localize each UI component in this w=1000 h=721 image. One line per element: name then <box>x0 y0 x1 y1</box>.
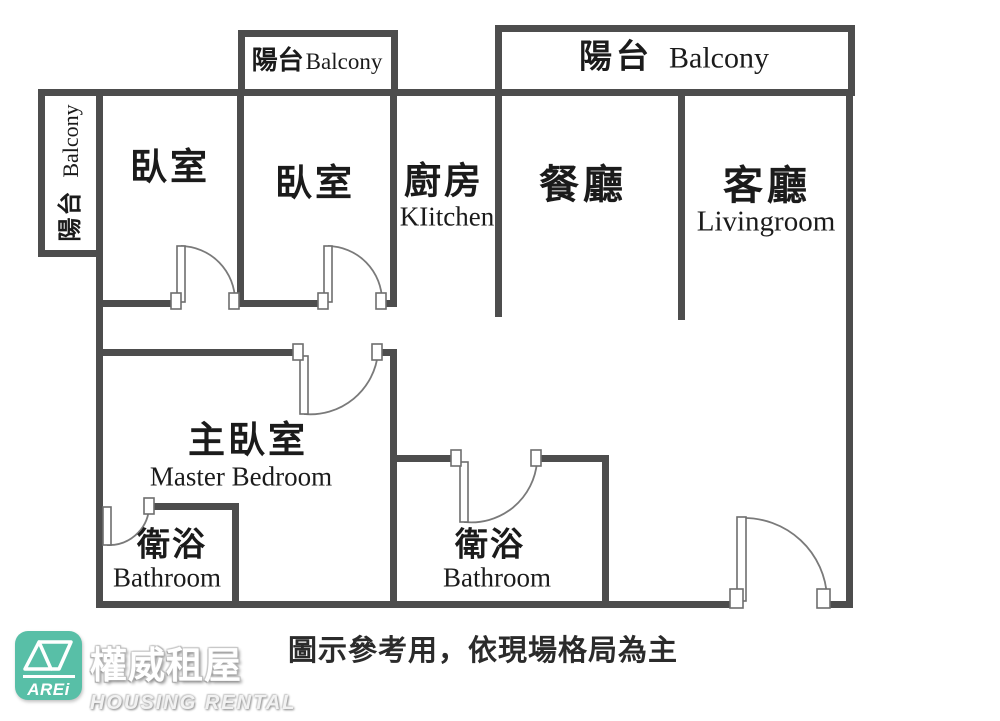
wall-master-top-left <box>96 349 302 356</box>
wall-bedroom1-bedroom2 <box>237 92 244 307</box>
wall-bedroom1-bottom <box>96 300 178 307</box>
label-balcony-top-small: 陽台Balcony <box>252 48 383 74</box>
label-master-en: Master Bedroom <box>150 464 332 491</box>
wall-right <box>846 89 853 608</box>
brand-name-zh: 權威租屋 <box>90 635 297 689</box>
wall-bathroom-hall-top-right <box>534 455 609 462</box>
label-bedroom1: 臥室 <box>130 150 210 187</box>
balcony-small-en: Balcony <box>306 49 383 74</box>
wall-dining-living <box>678 92 685 320</box>
door-master-bedroom <box>293 344 382 414</box>
logo-badge-text: AREi <box>27 680 70 700</box>
balcony-small-left <box>238 30 245 96</box>
wall-top <box>38 89 855 96</box>
label-bathroom-hall-zh: 衛浴 <box>455 530 525 563</box>
label-bathroom-master-zh: 衛浴 <box>137 530 207 563</box>
logo-wordmark: 權威租屋 HOUSING RENTAL <box>90 631 297 715</box>
door-entrance <box>730 517 830 608</box>
floorplan-drawing <box>0 0 1000 721</box>
logo-divider <box>23 675 75 678</box>
balcony-left-en: Balcony <box>58 104 83 177</box>
wall-bathroom-hall-right <box>602 455 609 608</box>
door-bedroom2 <box>318 246 386 309</box>
label-kitchen-en: KIitchen <box>400 204 494 231</box>
balcony-left-zh: 陽台 <box>58 190 84 242</box>
label-kitchen-zh: 廚房 <box>404 164 484 201</box>
balcony-left-wall <box>38 89 45 257</box>
balcony-small-top <box>238 30 398 37</box>
balcony-left-bottom <box>38 250 103 257</box>
label-balcony-left: 陽台Balcony <box>59 104 83 241</box>
wall-bottom-left <box>96 601 736 608</box>
wall-bathroom-hall-top-left <box>390 455 458 462</box>
wall-kitchen-dining <box>495 92 502 317</box>
label-bathroom-master-en: Bathroom <box>113 565 221 592</box>
label-master-zh: 主臥室 <box>188 423 308 460</box>
door-bedroom1 <box>171 246 239 309</box>
balcony-small-zh: 陽台 <box>252 46 304 75</box>
agency-logo: AREi 權威租屋 HOUSING RENTAL <box>15 631 297 715</box>
door-bathroom-hall <box>451 450 541 522</box>
label-bathroom-hall-en: Bathroom <box>443 565 551 592</box>
logo-badge: AREi <box>15 631 82 700</box>
label-living-en: Livingroom <box>697 208 836 237</box>
wall-bedroom2-bottom-left <box>233 300 325 307</box>
balcony-small-right <box>391 30 398 96</box>
balcony-large-top <box>495 25 855 32</box>
wall-bottom-right <box>830 601 853 608</box>
wall-master-right <box>390 349 397 608</box>
wall-left <box>96 89 103 608</box>
brand-name-en: HOUSING RENTAL <box>90 692 297 715</box>
label-living-zh: 客廳 <box>723 166 811 206</box>
label-dining: 餐廳 <box>539 165 627 205</box>
floorplan-page: { "floorplan": { "balconies": { "left": … <box>0 0 1000 721</box>
balcony-large-right <box>848 25 855 96</box>
tent-icon <box>21 637 77 673</box>
balcony-large-zh: 陽台 <box>579 40 653 76</box>
label-balcony-top-large: 陽台Balcony <box>579 42 769 75</box>
wall-bathroom-master-right <box>232 503 239 608</box>
label-bedroom2: 臥室 <box>275 166 355 203</box>
balcony-large-en: Balcony <box>669 42 769 75</box>
wall-bedroom2-kitchen <box>390 92 397 307</box>
wall-bathroom-master-top <box>148 503 239 510</box>
balcony-large-left <box>495 25 502 96</box>
disclaimer-text: 圖示參考用，依現場格局為主 <box>288 627 678 669</box>
